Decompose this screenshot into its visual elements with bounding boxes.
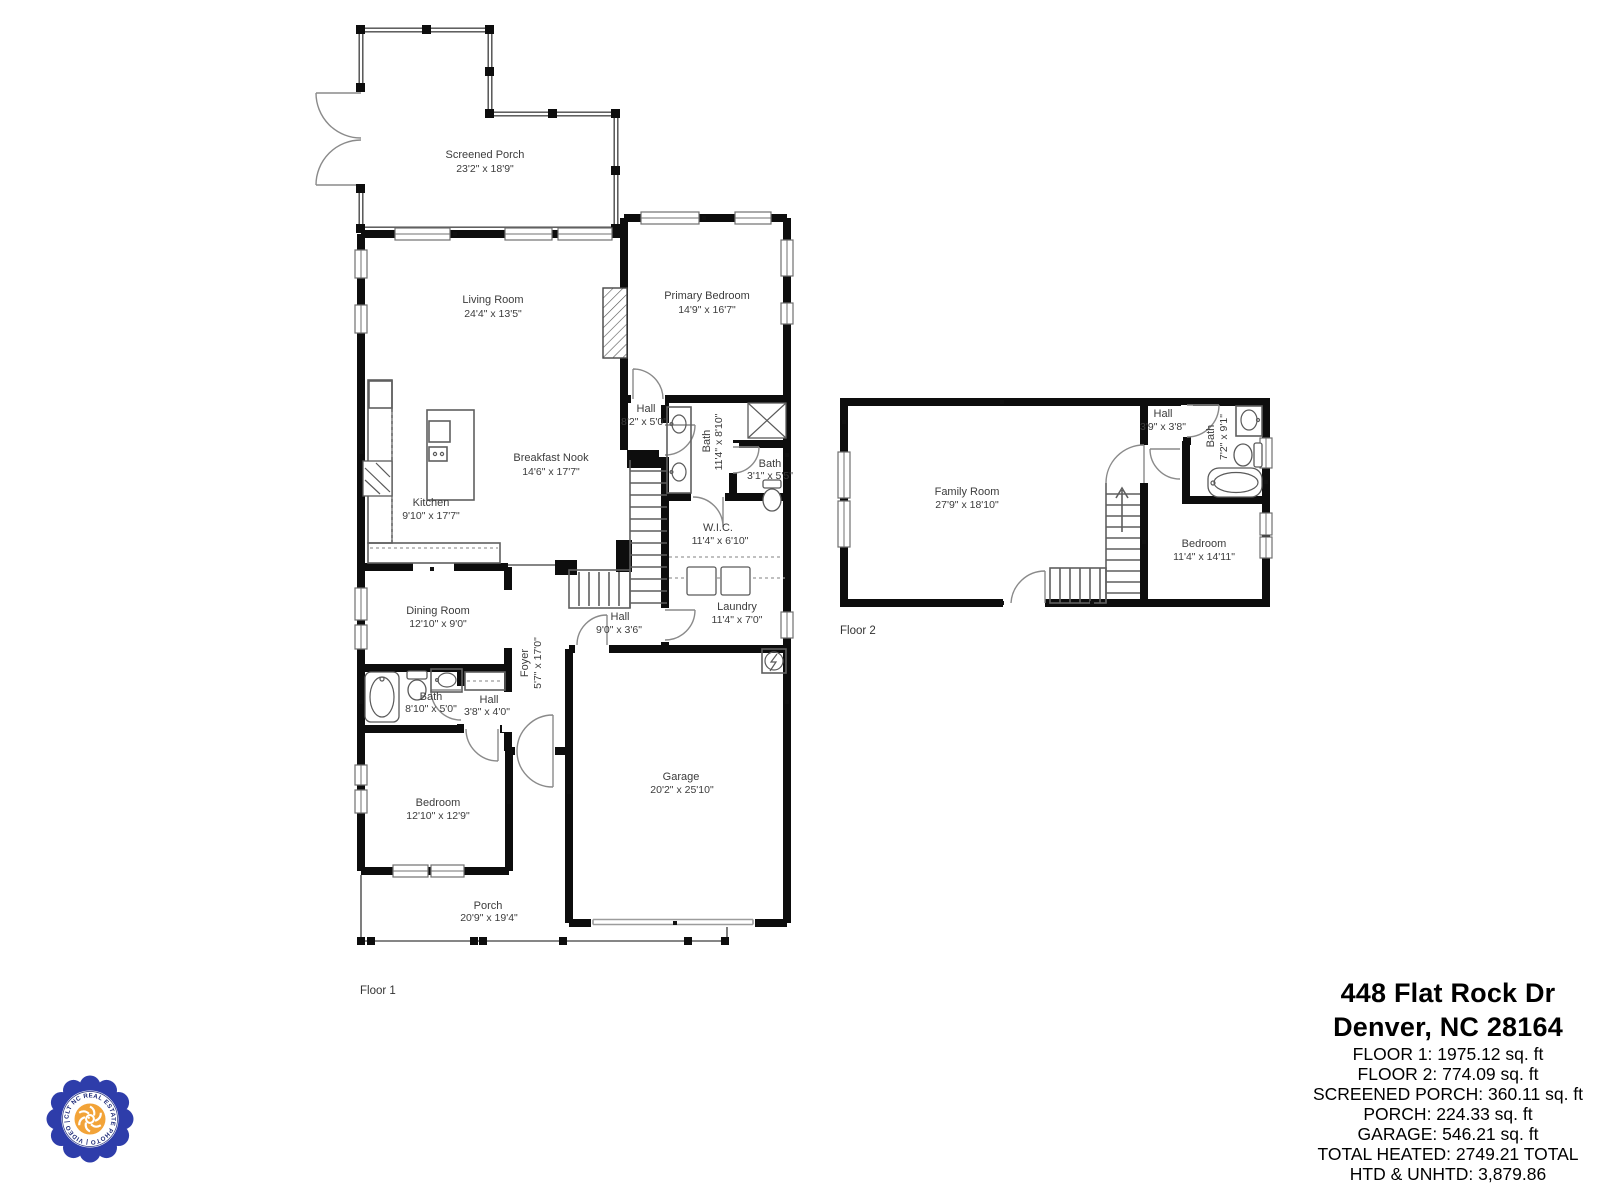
room-label-f2-hall: Hall xyxy=(1154,408,1173,420)
room-label-laundry: Laundry xyxy=(717,601,757,613)
room-dims-living-room: 24'4" x 13'5" xyxy=(464,308,522,320)
stat-porch: PORCH: 224.33 sq. ft xyxy=(1276,1104,1600,1124)
room-dims-porch: 20'9" x 19'4" xyxy=(460,912,518,924)
fireplace xyxy=(603,288,627,358)
floorplan-page: Screened Porch 23'2" x 18'9" Living Room… xyxy=(0,0,1600,1200)
front-porch-structure xyxy=(357,875,729,945)
floor2-walls xyxy=(844,402,1266,603)
stat-floor1: FLOOR 1: 1975.12 sq. ft xyxy=(1276,1044,1600,1064)
room-dims-laundry: 11'4" x 7'0" xyxy=(712,614,763,626)
room-dims-family-room: 27'9" x 18'10" xyxy=(935,499,999,511)
brand-logo: CLT NC REAL ESTATE PHOTO | VIDEO | xyxy=(40,1069,140,1169)
room-label-foyer: Foyer xyxy=(519,649,531,677)
room-label-hall-mid: Hall xyxy=(611,611,630,623)
kitchen-island xyxy=(427,410,474,500)
room-label-porch: Porch xyxy=(474,900,503,912)
stove xyxy=(363,461,392,496)
room-label-lower-bath: Bath xyxy=(420,691,443,703)
room-label-f2-bath: Bath xyxy=(1205,425,1217,448)
floor2-openings xyxy=(1003,405,1193,609)
hall-closet xyxy=(465,672,505,690)
floor1-stairs xyxy=(569,460,667,608)
floor2-label: Floor 2 xyxy=(840,625,876,637)
address-block: 448 Flat Rock Dr Denver, NC 28164 FLOOR … xyxy=(1276,976,1600,1184)
room-label-lower-hall: Hall xyxy=(480,694,499,706)
room-label-primary-bath: Bath xyxy=(701,430,713,453)
room-label-family-room: Family Room xyxy=(935,486,1000,498)
camera-aperture-icon xyxy=(75,1104,106,1135)
address-line2: Denver, NC 28164 xyxy=(1276,1010,1600,1044)
room-dims-foyer: 5'7" x 17'0" xyxy=(532,637,544,689)
stat-total-heated: TOTAL HEATED: 2749.21 TOTAL xyxy=(1276,1144,1600,1164)
stat-floor2: FLOOR 2: 774.09 sq. ft xyxy=(1276,1064,1600,1084)
stat-screened-porch: SCREENED PORCH: 360.11 sq. ft xyxy=(1276,1084,1600,1104)
room-label-garage: Garage xyxy=(663,771,700,783)
room-label-hall-upper: Hall xyxy=(637,403,656,415)
room-dims-garage: 20'2" x 25'10" xyxy=(650,784,714,796)
room-label-screened-porch: Screened Porch xyxy=(446,149,525,161)
room-dims-hall-upper: 8'2" x 5'0" xyxy=(621,416,667,428)
room-dims-kitchen: 9'10" x 17'7" xyxy=(402,510,460,522)
logo-badge: CLT NC REAL ESTATE PHOTO | VIDEO | xyxy=(47,1076,134,1163)
shower xyxy=(748,403,786,438)
room-label-bedroom: Bedroom xyxy=(416,797,461,809)
floor1-plan: Screened Porch 23'2" x 18'9" Living Room… xyxy=(316,25,793,997)
kitchen-counter xyxy=(363,380,500,563)
room-dims-primary-bedroom: 14'9" x 16'7" xyxy=(678,304,736,316)
room-label-f2-bedroom: Bedroom xyxy=(1182,538,1227,550)
floor1-openings xyxy=(413,393,755,929)
room-dims-f2-bedroom: 11'4" x 14'11" xyxy=(1173,551,1235,563)
room-label-dining-room: Dining Room xyxy=(406,605,470,617)
laundry-appliances xyxy=(669,567,785,595)
room-label-wic: W.I.C. xyxy=(703,522,733,534)
room-dims-small-bath: 3'1" x 5'5" xyxy=(747,470,793,482)
floor2-stairs xyxy=(1050,483,1140,603)
room-label-primary-bedroom: Primary Bedroom xyxy=(664,290,750,302)
floor1-room-labels: Screened Porch 23'2" x 18'9" Living Room… xyxy=(402,149,793,924)
room-dims-breakfast-nook: 14'6" x 17'7" xyxy=(522,466,580,478)
room-label-breakfast-nook: Breakfast Nook xyxy=(513,452,589,464)
room-label-living-room: Living Room xyxy=(462,294,523,306)
room-dims-f2-hall: 3'9" x 3'8" xyxy=(1140,421,1186,433)
room-dims-f2-bath: 7'2" x 9'1" xyxy=(1218,414,1230,460)
room-dims-lower-bath: 8'10" x 5'0" xyxy=(405,703,457,715)
room-label-small-bath: Bath xyxy=(759,458,782,470)
small-bath-toilet xyxy=(763,480,781,511)
address-line1: 448 Flat Rock Dr xyxy=(1276,976,1600,1010)
room-dims-hall-mid: 9'0" x 3'6" xyxy=(596,624,642,636)
room-dims-bedroom: 12'10" x 12'9" xyxy=(406,810,470,822)
room-dims-screened-porch: 23'2" x 18'9" xyxy=(456,163,514,175)
stat-garage: GARAGE: 546.21 sq. ft xyxy=(1276,1124,1600,1144)
room-dims-primary-bath: 11'4" x 8'10" xyxy=(713,413,725,470)
room-dims-wic: 11'4" x 6'10" xyxy=(692,535,749,547)
screened-porch-structure xyxy=(316,25,620,233)
room-dims-lower-hall: 3'8" x 4'0" xyxy=(464,706,510,718)
floor2-plan: Family Room 27'9" x 18'10" Hall 3'9" x 3… xyxy=(838,400,1272,637)
floor1-label: Floor 1 xyxy=(360,985,396,997)
stat-htd-unhtd: HTD & UNHTD: 3,879.86 xyxy=(1276,1164,1600,1184)
room-label-kitchen: Kitchen xyxy=(413,497,450,509)
room-dims-dining-room: 12'10" x 9'0" xyxy=(409,618,467,630)
